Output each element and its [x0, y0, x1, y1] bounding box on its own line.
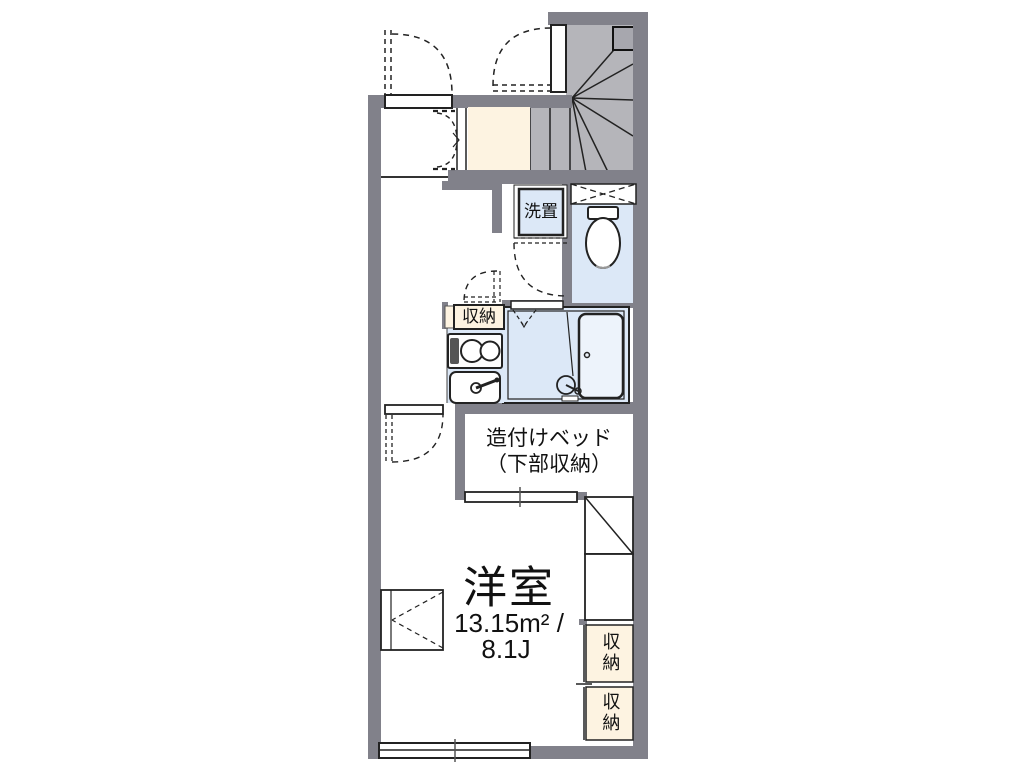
washroom-door [514, 238, 567, 296]
stair-door [551, 25, 566, 92]
louver-window [571, 184, 636, 204]
storage-lower-label: 収納 [600, 692, 621, 734]
room-name: 洋室 [463, 564, 555, 615]
kitchen [445, 271, 504, 403]
room-door [385, 405, 443, 462]
bed-caption-line2: （下部収納） [486, 453, 612, 477]
meter-box [613, 27, 635, 50]
room-area-jou: 8.1J [481, 635, 530, 665]
refrigerator-space [585, 497, 633, 620]
floor-plan: 洗置 収納 造付けベッド （下部収納） 洋室 13.15m² / 8.1J 収納… [0, 0, 1017, 772]
toilet [586, 207, 620, 268]
washer-label: 洗置 [524, 202, 558, 222]
kitchen-storage-label: 収納 [462, 307, 496, 327]
bathroom [503, 301, 629, 403]
side-window [381, 590, 443, 650]
bottom-window [379, 739, 530, 762]
storage-upper-label: 収納 [600, 632, 621, 674]
bathtub [579, 314, 623, 398]
stove [448, 334, 502, 368]
sink [450, 372, 500, 403]
bed-caption-line1: 造付けベッド [486, 427, 612, 451]
toilet-room [571, 184, 636, 303]
entrance-genkan [455, 107, 530, 170]
